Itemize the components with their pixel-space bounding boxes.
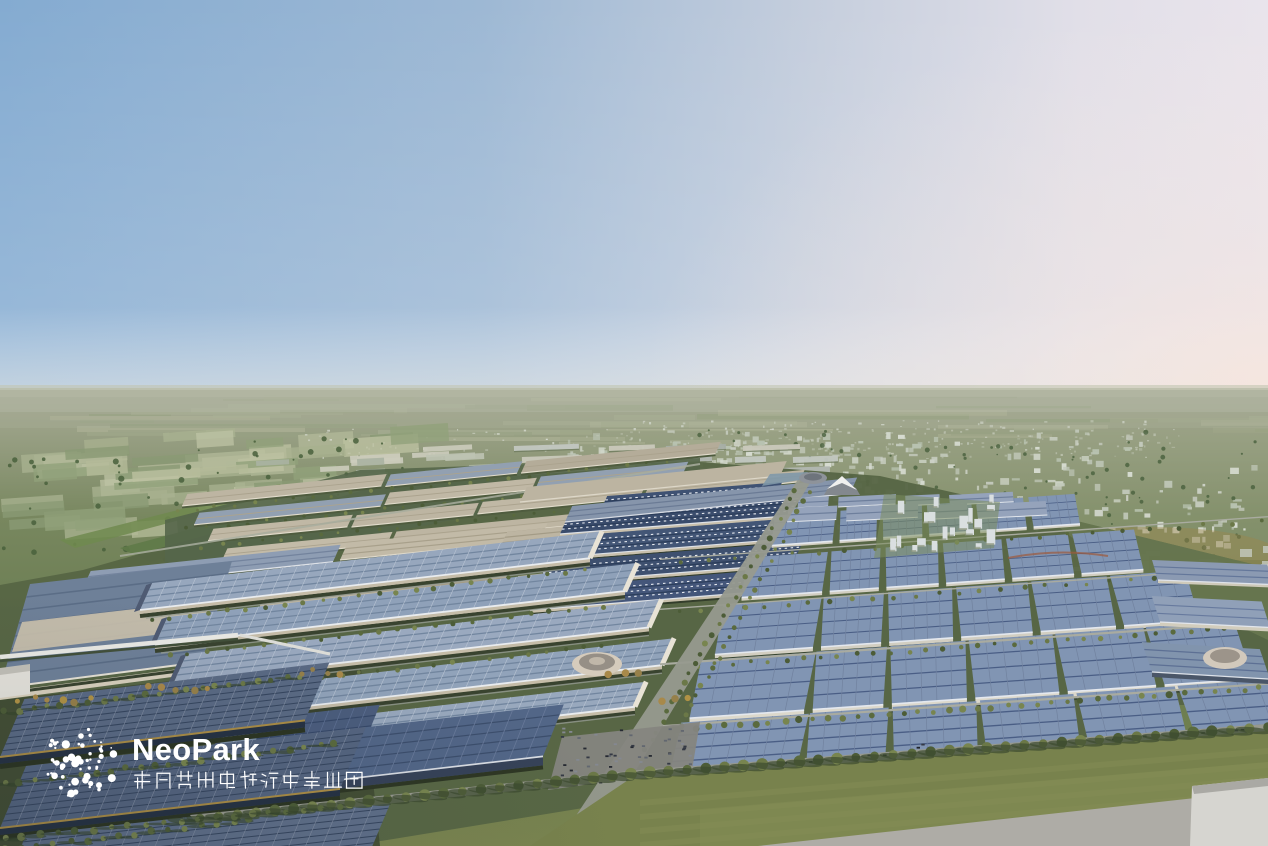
svg-text:NeoPark: NeoPark <box>132 732 260 767</box>
